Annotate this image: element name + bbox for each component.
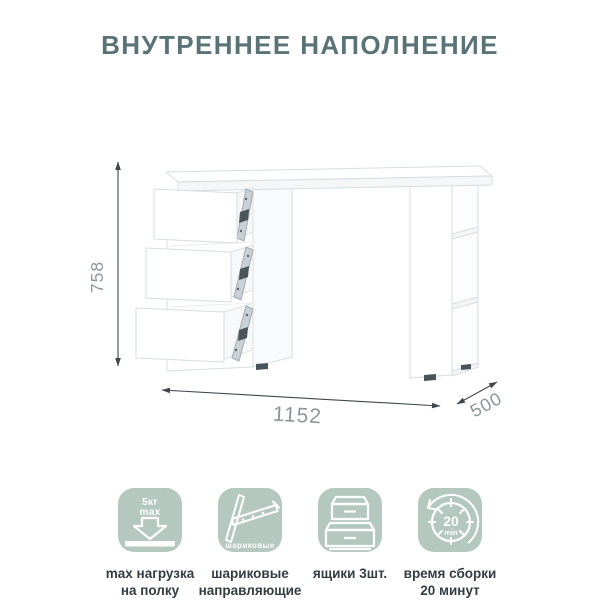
- feature-caption: ящики 3шт.: [313, 565, 387, 582]
- open-drawers: [136, 188, 253, 362]
- drawers-icon: [318, 488, 382, 552]
- depth-dimension-label: 500: [467, 388, 506, 421]
- width-dimension-label: 1152: [272, 403, 322, 429]
- svg-text:min: min: [444, 528, 458, 537]
- feature-max-load: 5кг max max нагрузка на полку: [100, 488, 200, 599]
- infographic-page: ВНУТРЕННЕЕ НАПОЛНЕНИЕ: [0, 0, 600, 600]
- feature-row: 5кг max max нагрузка на полку: [0, 488, 600, 599]
- feature-caption: max нагрузка на полку: [106, 565, 194, 599]
- svg-text:шариковые: шариковые: [225, 541, 275, 550]
- assembly-time-icon: 20 min: [418, 488, 482, 552]
- feature-caption: шариковые направляющие: [199, 565, 302, 599]
- feature-slides: шариковые шариковые направляющие: [200, 488, 300, 599]
- svg-text:max: max: [140, 507, 161, 518]
- ball-bearing-slides-icon: шариковые: [218, 488, 282, 552]
- svg-text:20: 20: [443, 513, 459, 529]
- feature-assembly-time: 20 min время сборки 20 минут: [400, 488, 500, 599]
- height-dimension-label: 758: [87, 261, 107, 293]
- feature-drawers: ящики 3шт.: [300, 488, 400, 599]
- feature-caption: время сборки 20 минут: [404, 565, 497, 599]
- max-load-icon: 5кг max: [118, 488, 182, 552]
